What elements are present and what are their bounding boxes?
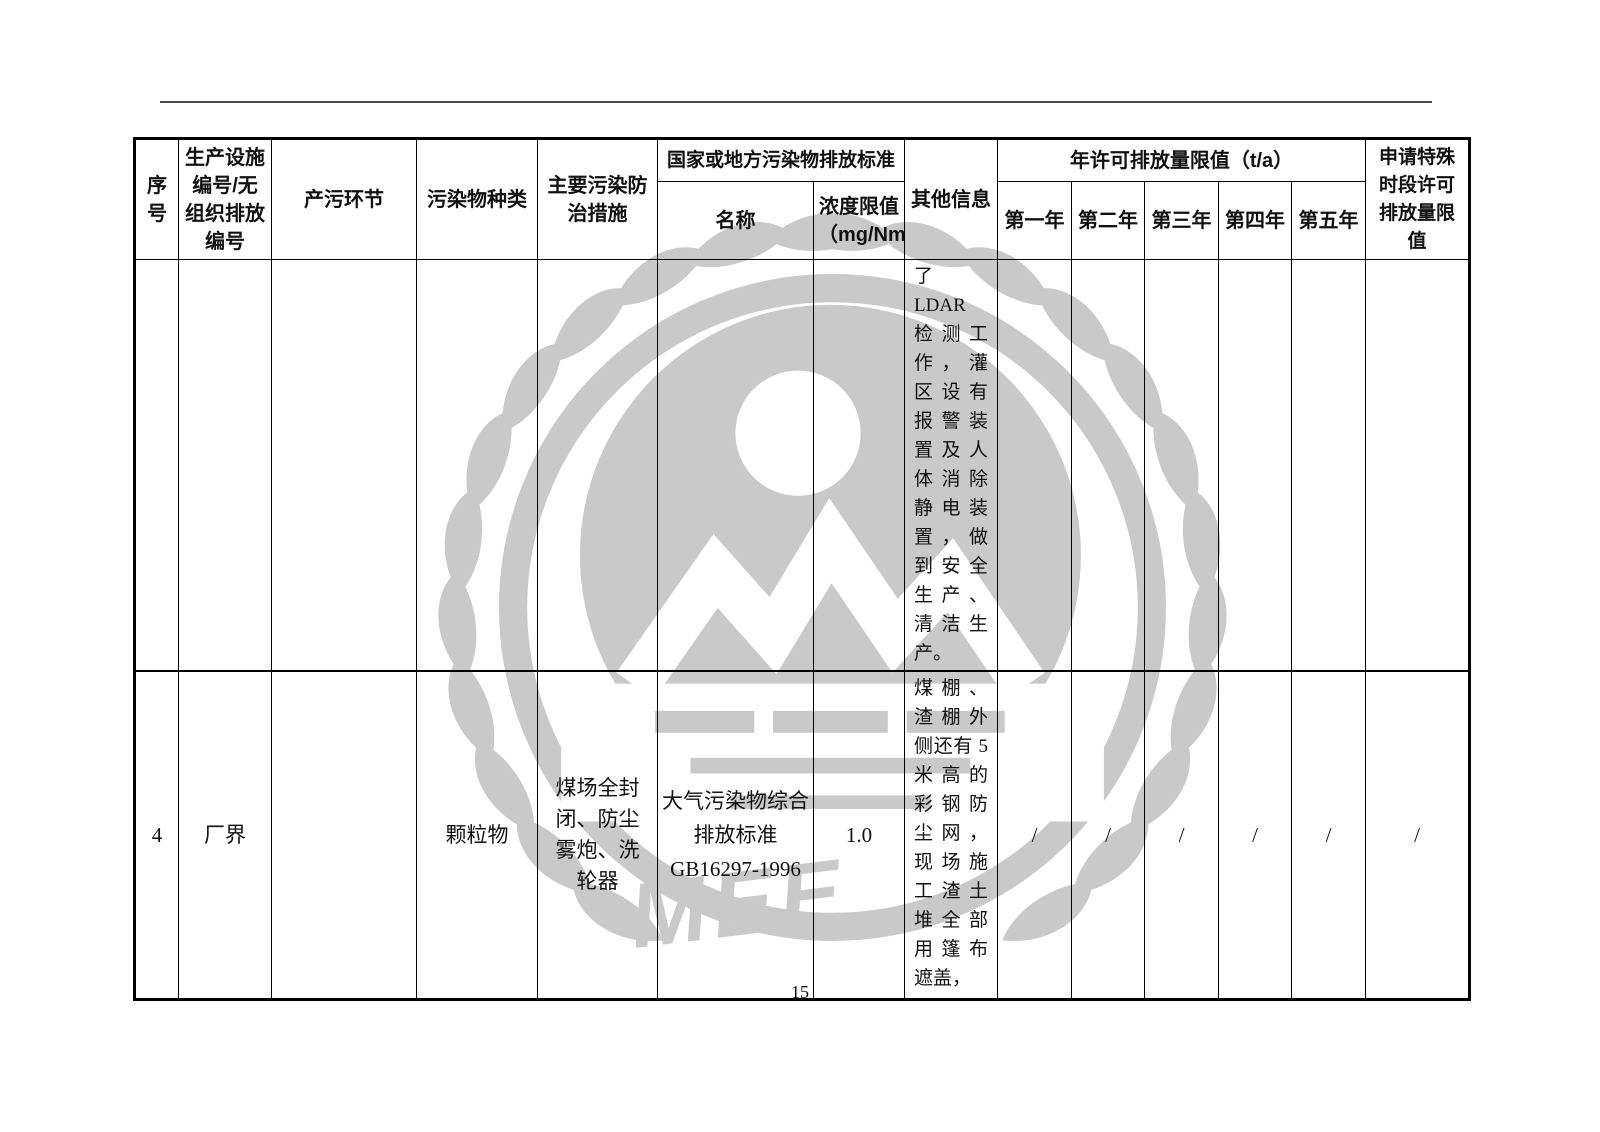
header-pollutant-type: 污染物种类 [417,139,538,260]
cell-year-2: / [1072,671,1145,999]
cell-year-5 [1292,260,1366,672]
page-number: 15 [0,982,1600,1003]
cell-process [272,260,417,672]
cell-pollutant-type [417,260,538,672]
cell-facility-id [179,260,272,672]
cell-measures: 煤场全封闭、防尘雾炮、洗轮器 [538,671,658,999]
header-year-3: 第三年 [1145,182,1219,260]
cell-year-4 [1219,260,1292,672]
cell-other-info: 煤棚、渣棚外侧还有 5 米高的彩钢防尘网，现场施工渣土堆全部用篷布遮盖， [905,671,998,999]
cell-year-3 [1145,260,1219,672]
header-index: 序号 [135,139,179,260]
header-concentration-limit: 浓度限值（mg/Nm³） [814,182,905,260]
cell-measures [538,260,658,672]
cell-year-2 [1072,260,1145,672]
table-row-continuation: 了 LDAR 检测工作，灌区设有报警装置及人体消除静电装置，做到安全生产、清洁生… [135,260,1470,672]
cell-index [135,260,179,672]
cell-year-5: / [1292,671,1366,999]
header-special-period: 申请特殊时段许可排放量限值 [1366,139,1470,260]
header-year-5: 第五年 [1292,182,1366,260]
header-facility-id: 生产设施编号/无组织排放编号 [179,139,272,260]
cell-facility-id: 厂界 [179,671,272,999]
header-standard-group: 国家或地方污染物排放标准 [658,139,905,182]
cell-standard-name [658,260,814,672]
header-standard-name: 名称 [658,182,814,260]
header-year-4: 第四年 [1219,182,1292,260]
pollutant-permit-table: 序号 生产设施编号/无组织排放编号 产污环节 污染物种类 主要污染防治措施 国家… [133,137,1471,1001]
cell-year-1 [998,260,1072,672]
cell-process [272,671,417,999]
cell-concentration-limit: 1.0 [814,671,905,999]
page-header-rule [160,101,1432,103]
header-other-info: 其他信息 [905,139,998,260]
header-year-1: 第一年 [998,182,1072,260]
cell-pollutant-type: 颗粒物 [417,671,538,999]
cell-year-4: / [1219,671,1292,999]
header-year-2: 第二年 [1072,182,1145,260]
header-measures: 主要污染防治措施 [538,139,658,260]
cell-other-info: 了 LDAR 检测工作，灌区设有报警装置及人体消除静电装置，做到安全生产、清洁生… [905,260,998,672]
cell-special-period [1366,260,1470,672]
table-row-4: 4 厂界 颗粒物 煤场全封闭、防尘雾炮、洗轮器 大气污染物综合 排放标准 GB1… [135,671,1470,999]
cell-year-1: / [998,671,1072,999]
cell-year-3: / [1145,671,1219,999]
cell-concentration-limit [814,260,905,672]
header-annual-limit-group: 年许可排放量限值（t/a） [998,139,1366,182]
cell-index: 4 [135,671,179,999]
cell-standard-name: 大气污染物综合 排放标准 GB16297-1996 [658,671,814,999]
header-process: 产污环节 [272,139,417,260]
cell-special-period: / [1366,671,1470,999]
